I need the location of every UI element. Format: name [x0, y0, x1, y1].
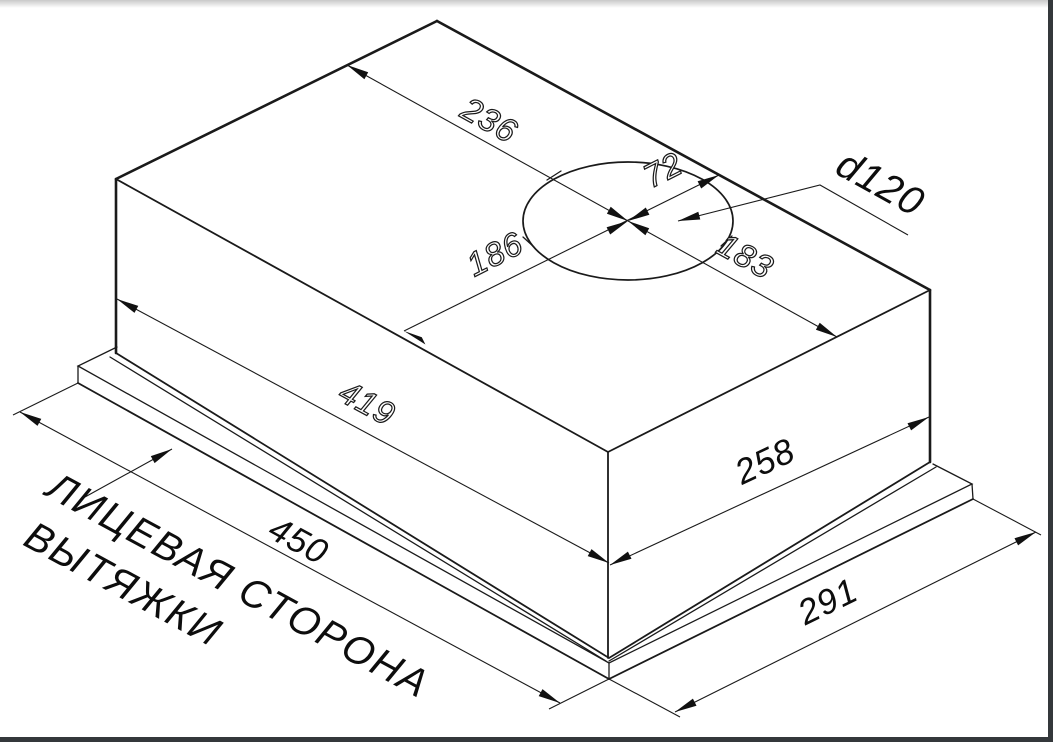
ext-line-291-left [609, 679, 680, 717]
panel-corner-right-vertical [972, 484, 973, 499]
arrowhead [1015, 532, 1037, 545]
arrowhead [347, 65, 368, 79]
arrowhead [588, 549, 609, 563]
body-edge-front-right [608, 290, 930, 452]
arrowhead [404, 331, 425, 345]
dim-72-label: 72 [637, 144, 688, 195]
arrowhead [151, 449, 172, 463]
arrowhead [539, 689, 560, 703]
ext-line-450-right [549, 679, 609, 709]
arrowhead [628, 208, 649, 222]
arrowhead [816, 323, 837, 337]
dim-panel-depth: 291 [609, 499, 1041, 717]
dim-419-label: 419 [333, 373, 402, 433]
arrowhead [607, 221, 628, 235]
dim-line-186-72 [404, 175, 719, 331]
arrowhead [698, 175, 719, 189]
window-border-bottom [0, 737, 1053, 742]
body-edge-top-left [116, 21, 437, 179]
arrowhead [20, 412, 41, 426]
arrowhead [675, 699, 697, 712]
arrowhead [678, 212, 700, 221]
ext-line-450-left [13, 383, 78, 415]
dim-236-label: 236 [454, 89, 524, 150]
panel-fold-right [609, 467, 936, 661]
dim-line-291 [675, 532, 1036, 712]
arrowhead [607, 207, 628, 221]
drawing-canvas: 236 183 186 72 d120 419 258 [0, 0, 1053, 742]
dim-line-419 [117, 299, 609, 563]
arrowhead [908, 417, 930, 430]
dim-183-label: 183 [711, 226, 780, 287]
front-side-label: ЛИЦЕВАЯ СТОРОНА ВЫТЯЖКИ [17, 449, 436, 707]
dim-258-label: 258 [728, 431, 801, 493]
arrowhead [117, 299, 138, 313]
arrowhead [610, 552, 632, 565]
window-border-right [1048, 0, 1053, 742]
dim-panel-length: 450 [13, 383, 609, 709]
arrowhead [628, 221, 649, 235]
dim-body-length: 419 [117, 299, 609, 563]
dim-d120-label: d120 [829, 142, 932, 226]
hood-dimension-drawing: 236 183 186 72 d120 419 258 [0, 0, 1053, 742]
ext-line-291-right [973, 499, 1041, 535]
dim-450-label: 450 [262, 509, 335, 573]
